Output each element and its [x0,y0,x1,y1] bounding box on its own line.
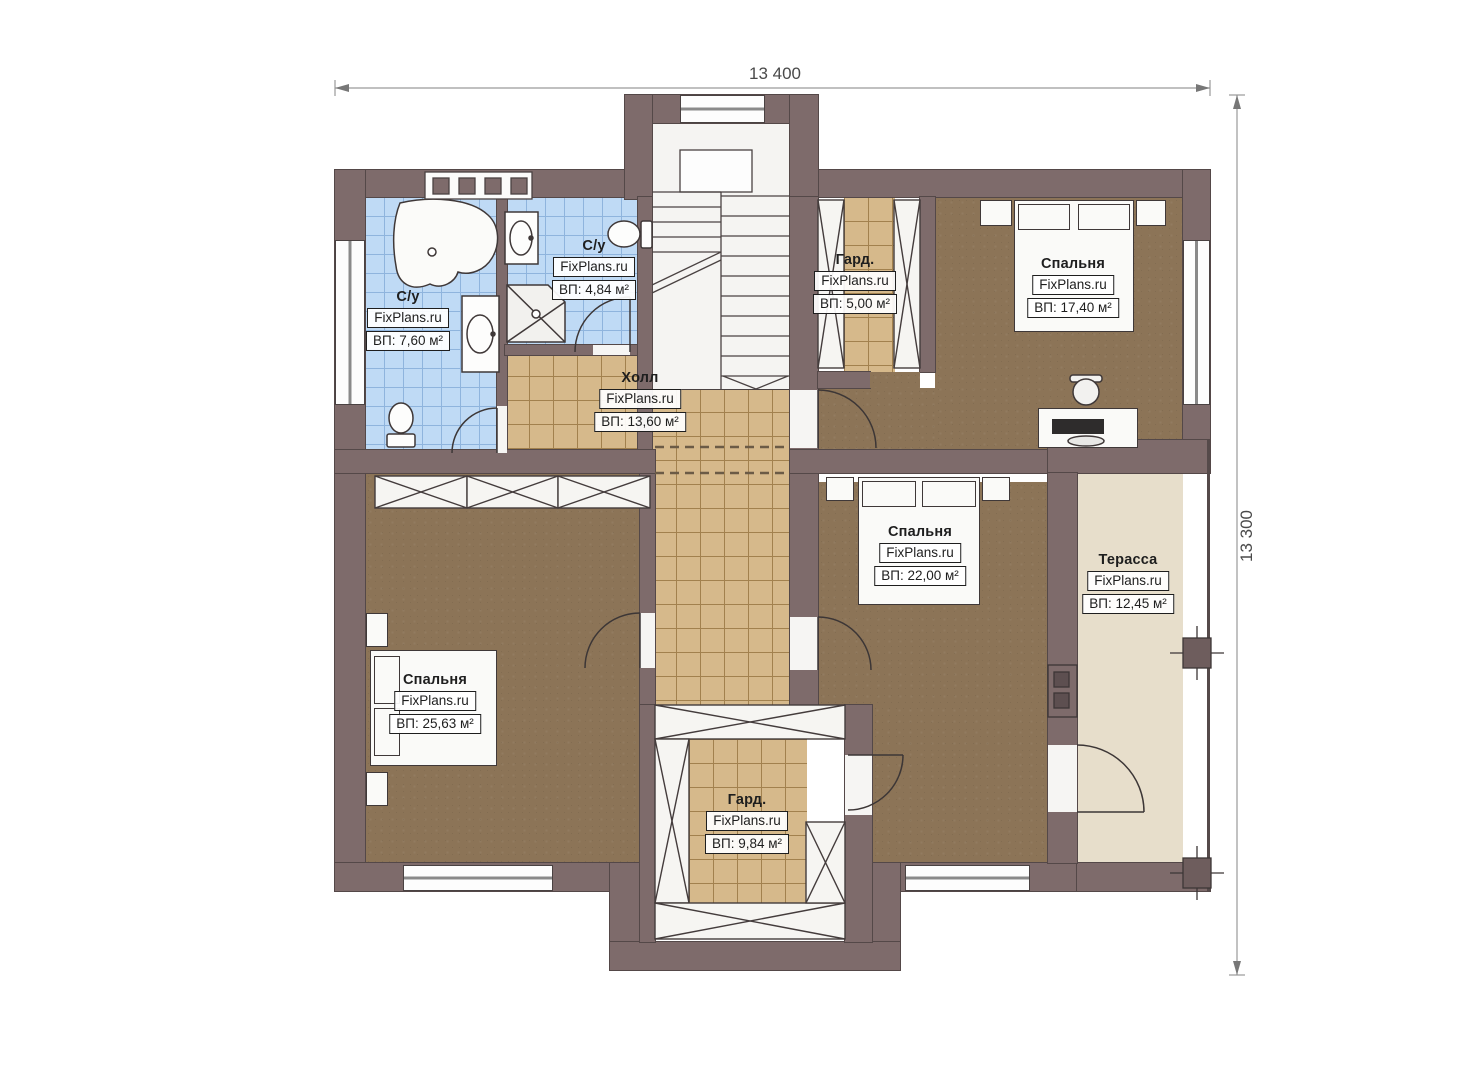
wall-mid-left [335,450,655,473]
bedroom-1-floor-ext [818,388,935,455]
window-stairbay [680,95,765,123]
nightstand [982,477,1010,501]
dimension-top: 13 400 [715,64,835,84]
wall-wardrobe-2-left [640,705,655,942]
room-name: Терасса [1099,552,1158,568]
pillow [1078,204,1130,230]
room-name: Спальня [888,524,952,540]
door-opening-bedroom-3 [640,613,655,668]
room-area: ВП: 9,84 м² [705,834,789,854]
label-bedroom-2: Спальня FixPlans.ru ВП: 22,00 м² [874,524,966,586]
room-name: С/у [582,238,605,254]
wall-wardrobe-2-right [845,705,872,942]
window-bedroom-3 [403,865,553,891]
terrace-edge-line [1207,440,1210,891]
watermark: FixPlans.ru [394,691,476,711]
wall-wardrobe-1-bottom [818,372,870,388]
room-name: Спальня [403,672,467,688]
floor-plan: 13 400 13 300 С/у FixPlans.ru ВП: 7,60 м… [0,0,1473,1080]
wall-mid-right [790,450,1077,473]
room-name: Гард. [728,792,767,808]
pillow [922,481,976,507]
watermark: FixPlans.ru [367,308,449,328]
monitor [1052,419,1104,434]
nightstand [366,772,388,806]
terrace-floor [1077,473,1183,863]
stairwell [652,123,790,390]
room-name: Гард. [836,252,875,268]
room-name: Холл [621,370,658,386]
label-bedroom-1: Спальня FixPlans.ru ВП: 17,40 м² [1027,256,1119,318]
nightstand [980,200,1012,226]
pillow [862,481,916,507]
room-area: ВП: 22,00 м² [874,566,966,586]
window-bathroom-1 [335,240,365,405]
watermark: FixPlans.ru [814,271,896,291]
label-wardrobe-2: Гард. FixPlans.ru ВП: 9,84 м² [705,792,789,854]
room-area: ВП: 5,00 м² [813,294,897,314]
wall-top-right [790,170,1210,197]
wall-bay-bottom [610,942,900,970]
door-opening-bathroom-1 [497,406,507,453]
watermark: FixPlans.ru [706,811,788,831]
room-name: С/у [396,289,419,305]
wall-stairbay-left [625,95,652,199]
nightstand [1136,200,1166,226]
room-area: ВП: 4,84 м² [552,280,636,300]
wall-terrace-bottom [1077,863,1210,891]
door-opening-bedroom-1 [790,390,818,448]
wardrobe-1-entrance [870,372,920,388]
room-area: ВП: 7,60 м² [366,331,450,351]
watermark: FixPlans.ru [599,389,681,409]
wall-wardrobe-1-right [920,197,935,372]
bedroom-2-floor-ext [872,705,1077,863]
watermark: FixPlans.ru [1087,571,1169,591]
wall-top-left [335,170,652,197]
label-hall: Холл FixPlans.ru ВП: 13,60 м² [594,370,686,432]
nightstand [826,477,854,501]
watermark: FixPlans.ru [553,257,635,277]
dimension-right: 13 300 [1237,476,1257,596]
door-opening-bedroom-2 [790,617,818,670]
wall-stairbay-right [790,95,818,199]
door-opening-bathroom-2 [593,345,630,355]
room-area: ВП: 13,60 м² [594,412,686,432]
room-name: Спальня [1041,256,1105,272]
label-bathroom-2: С/у FixPlans.ru ВП: 4,84 м² [552,238,636,300]
room-area: ВП: 17,40 м² [1027,298,1119,318]
label-terrace: Терасса FixPlans.ru ВП: 12,45 м² [1082,552,1174,614]
label-bathroom-1: С/у FixPlans.ru ВП: 7,60 м² [366,289,450,351]
door-opening-terrace [1048,745,1077,812]
label-bedroom-3: Спальня FixPlans.ru ВП: 25,63 м² [389,672,481,734]
watermark: FixPlans.ru [1032,275,1114,295]
hall-corridor-floor [652,388,790,705]
watermark: FixPlans.ru [879,543,961,563]
nightstand [366,613,388,647]
window-bedroom-1 [1183,240,1210,405]
room-area: ВП: 12,45 м² [1082,594,1174,614]
pillow [1018,204,1070,230]
room-area: ВП: 25,63 м² [389,714,481,734]
label-wardrobe-1: Гард. FixPlans.ru ВП: 5,00 м² [813,252,897,314]
door-opening-wardrobe-2 [845,755,872,815]
window-bedroom-2 [905,865,1030,891]
